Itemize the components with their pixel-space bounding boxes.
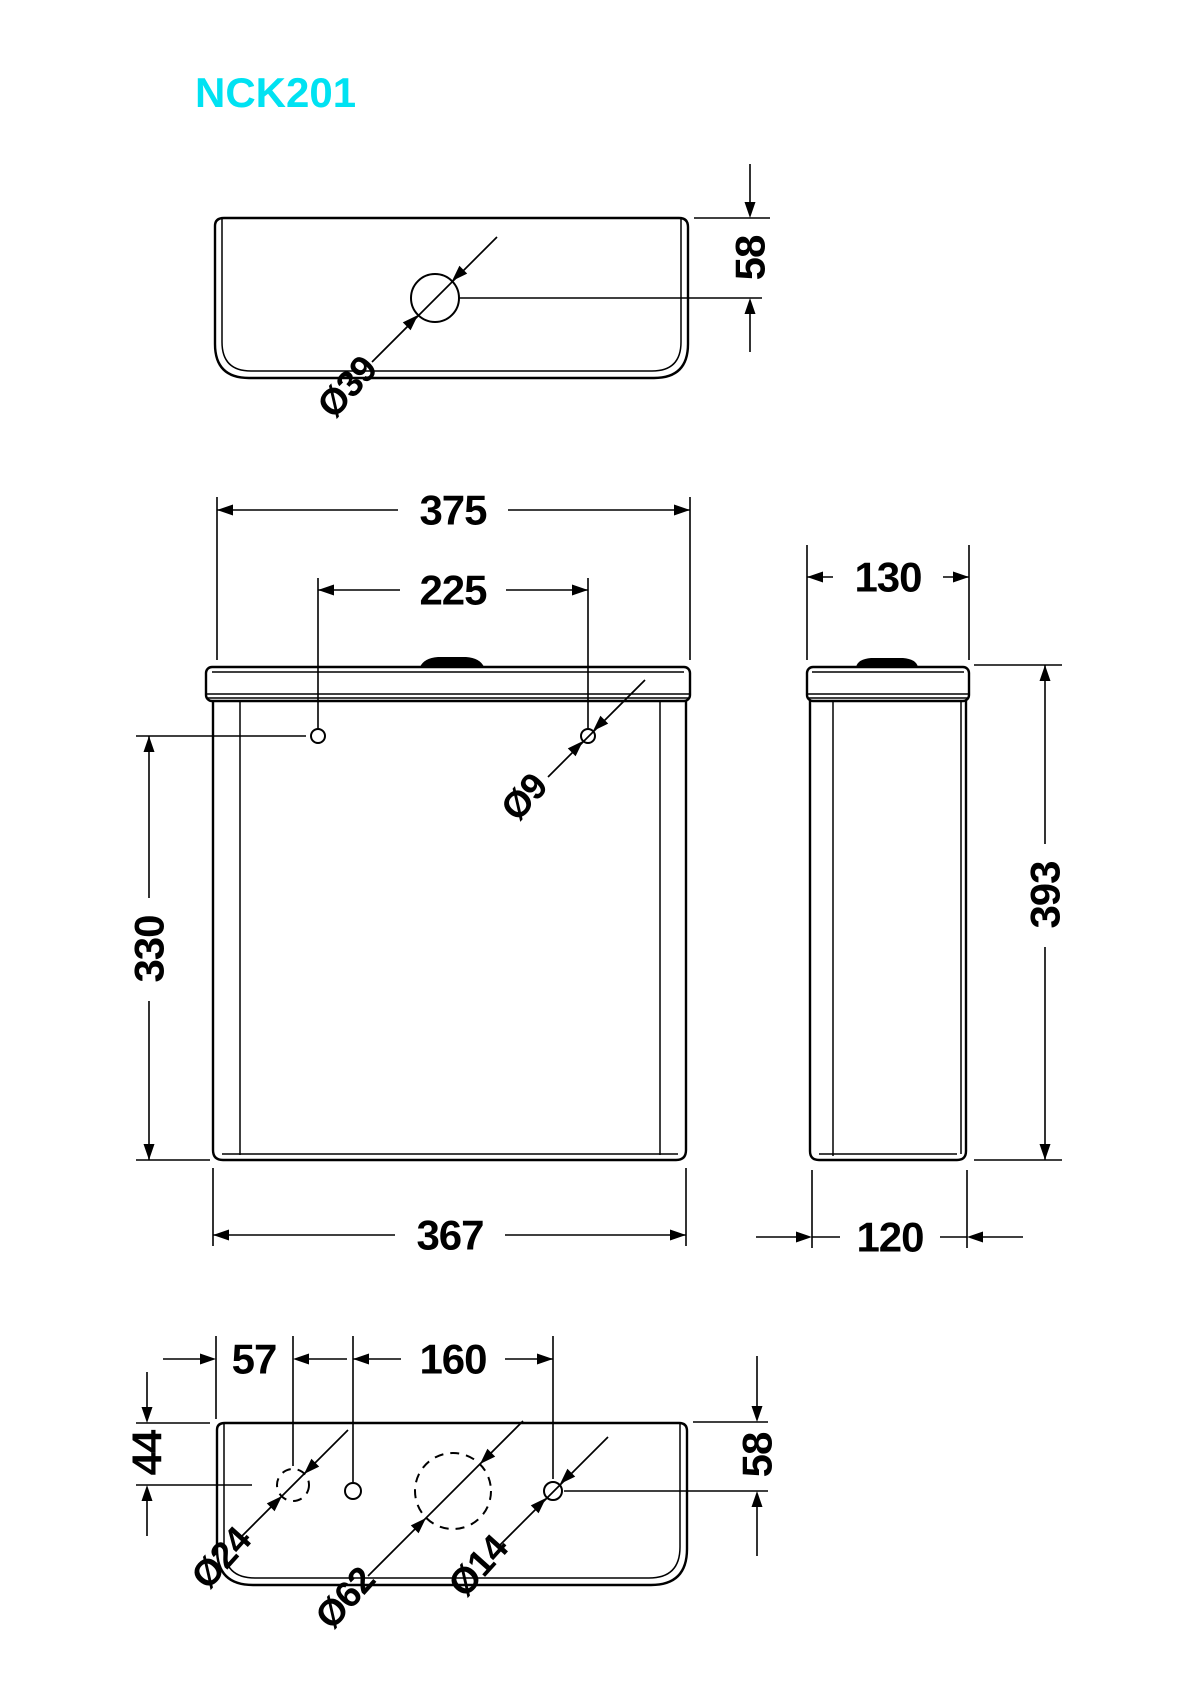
dim-arrowhead: [670, 1230, 686, 1241]
dim-top-58: 58: [727, 235, 774, 280]
dim-front-225: 225: [419, 567, 487, 614]
side-view: 130 393 120: [756, 545, 1069, 1261]
dim-front-367: 367: [416, 1212, 483, 1259]
dim-arrowhead: [752, 1406, 763, 1422]
dim-arrowhead: [144, 736, 155, 752]
dim-arrowhead: [572, 585, 588, 596]
drawing-title: NCK201: [195, 69, 356, 116]
dim-bottom-57: 57: [232, 1336, 277, 1383]
dim-arrowhead: [144, 1144, 155, 1160]
dim-arrowhead: [142, 1407, 153, 1423]
top-view: Ø39 58: [215, 164, 774, 426]
dim-arrowhead: [353, 1354, 369, 1365]
dim-arrowhead: [318, 585, 334, 596]
dim-arrowhead: [796, 1232, 812, 1243]
flush-button-side: [856, 658, 918, 667]
dim-front-375: 375: [419, 487, 487, 534]
dim-arrowhead: [1040, 1144, 1051, 1160]
technical-drawing: NCK201 Ø39 58 375 225: [0, 0, 1190, 1684]
dim-side-120: 120: [856, 1214, 923, 1261]
dim-arrowhead: [953, 572, 969, 583]
dim-arrowhead: [1040, 665, 1051, 681]
dim-arrowhead: [807, 572, 823, 583]
dim-arrowhead: [674, 505, 690, 516]
dim-arrowhead: [213, 1230, 229, 1241]
bottom-view-outline: [217, 1423, 687, 1585]
dim-bottom-160: 160: [419, 1336, 486, 1383]
dim-arrowhead: [293, 1354, 309, 1365]
button-hole-leader: [372, 237, 497, 362]
dim-side-393: 393: [1022, 861, 1069, 928]
dim-front-hole-diameter: Ø9: [493, 765, 555, 828]
dim-arrowhead: [200, 1354, 216, 1365]
dim-arrowhead: [217, 505, 233, 516]
dim-arrowhead: [967, 1232, 983, 1243]
flush-button: [420, 657, 484, 667]
dim-bottom-overflow-diameter: Ø14: [440, 1526, 516, 1604]
fixing-hole-left: [311, 729, 325, 743]
fixing-hole: [345, 1483, 361, 1499]
dim-arrowhead: [142, 1485, 153, 1501]
dim-arrowhead: [752, 1491, 763, 1507]
front-body-outline: [213, 701, 686, 1160]
dim-bottom-58: 58: [734, 1432, 781, 1477]
inlet-leader: [240, 1430, 348, 1538]
drawing-page: NCK201 Ø39 58 375 225: [0, 0, 1190, 1684]
dim-arrowhead: [537, 1354, 553, 1365]
dim-arrowhead: [745, 298, 756, 314]
dim-bottom-44: 44: [124, 1429, 171, 1475]
front-view: 375 225 330 Ø9: [126, 487, 691, 1259]
dim-arrowhead: [745, 202, 756, 218]
dim-bottom-outlet-diameter: Ø62: [307, 1559, 383, 1636]
dim-front-330: 330: [126, 915, 173, 982]
top-view-inner-line: [222, 218, 681, 371]
dim-side-130: 130: [854, 554, 921, 601]
bottom-view: 57 160 44 58: [124, 1336, 781, 1637]
